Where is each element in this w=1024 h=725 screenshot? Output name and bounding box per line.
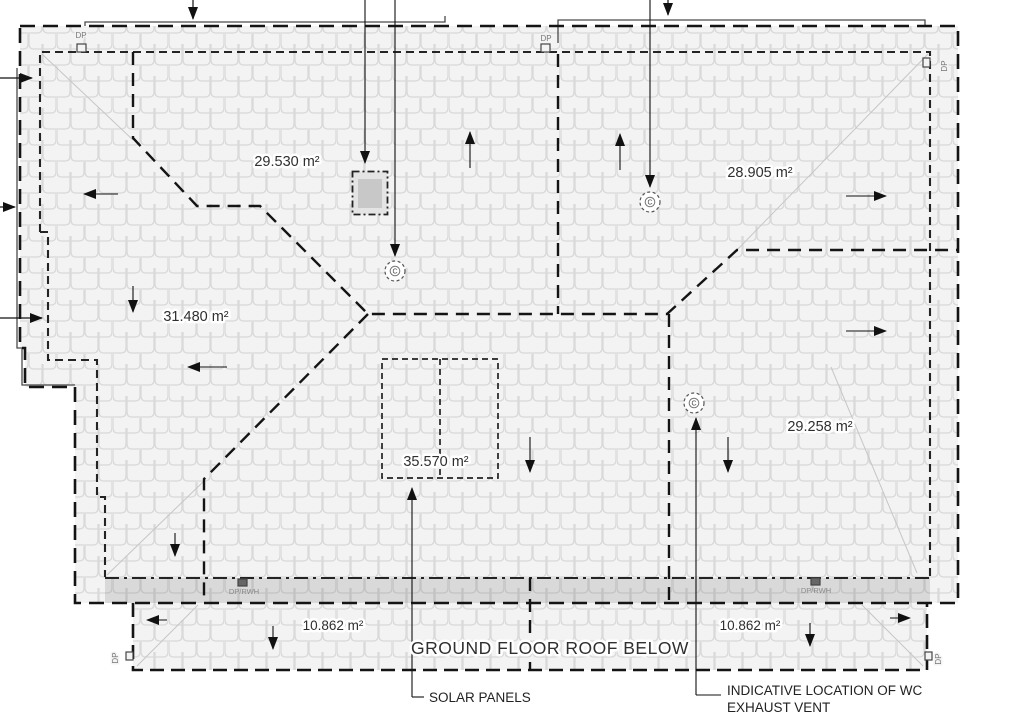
area-label-solar: 35.570 m² — [403, 454, 468, 470]
ground-floor-roof-label: GROUND FLOOR ROOF BELOW — [411, 638, 689, 658]
vent-letter: C — [691, 400, 696, 407]
roof-surfaces — [20, 26, 958, 670]
roof-plan-drawing: C C C — [0, 0, 1024, 725]
dp-rwh-label-right: DP/RWH — [801, 586, 831, 595]
area-label-upper-right: 28.905 m² — [727, 165, 792, 181]
area-label-right: 29.258 m² — [787, 419, 852, 435]
vent-letter: C — [392, 268, 397, 275]
dp-rwh-label-left: DP/RWH — [229, 587, 259, 596]
vent-letter: C — [647, 199, 652, 206]
dp-label-top-right: DP — [940, 60, 949, 71]
skylight — [353, 172, 388, 215]
exhaust-vent-3: C — [684, 393, 704, 413]
dp-label-bottom-left: DP — [111, 652, 120, 663]
exhaust-vent-1: C — [385, 261, 405, 281]
wc-vent-label-line2: EXHAUST VENT — [727, 700, 830, 715]
area-label-left-wing: 31.480 m² — [163, 309, 228, 325]
roof-plan-svg: C C C — [0, 0, 1024, 725]
area-label-lower-right: 10.862 m² — [720, 618, 781, 633]
exhaust-vent-2: C — [640, 192, 660, 212]
solar-panels-label: SOLAR PANELS — [429, 690, 531, 705]
area-label-upper-left: 29.530 m² — [254, 154, 319, 170]
dp-label-bottom-right: DP — [934, 653, 943, 664]
wc-vent-label-line1: INDICATIVE LOCATION OF WC — [727, 683, 923, 698]
dp-label-top-middle: DP — [540, 34, 551, 43]
dp-label-top-left: DP — [75, 31, 86, 40]
area-label-lower-left: 10.862 m² — [303, 618, 364, 633]
